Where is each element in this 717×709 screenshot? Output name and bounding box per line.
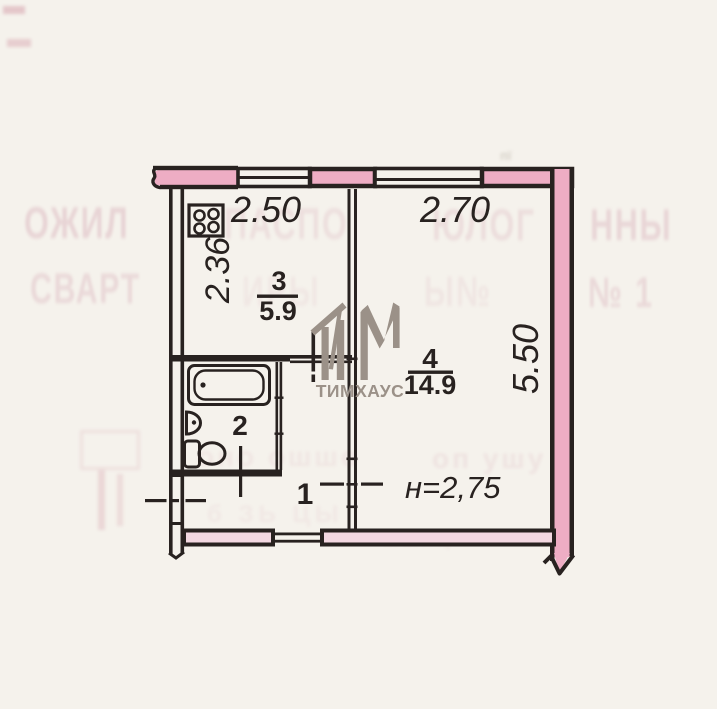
svg-text:н=2,75: н=2,75 [405,470,501,505]
svg-text:2.50: 2.50 [230,189,301,230]
svg-text:14.9: 14.9 [404,370,457,400]
svg-text:5.50: 5.50 [505,324,546,394]
svg-text:1: 1 [297,478,314,511]
svg-text:2.36: 2.36 [199,237,237,304]
svg-text:2.70: 2.70 [419,189,490,230]
svg-text:3: 3 [271,266,286,296]
svg-text:2: 2 [232,410,248,441]
svg-text:ТИМХАУС: ТИМХАУС [316,381,405,401]
svg-text:5.9: 5.9 [259,296,297,326]
